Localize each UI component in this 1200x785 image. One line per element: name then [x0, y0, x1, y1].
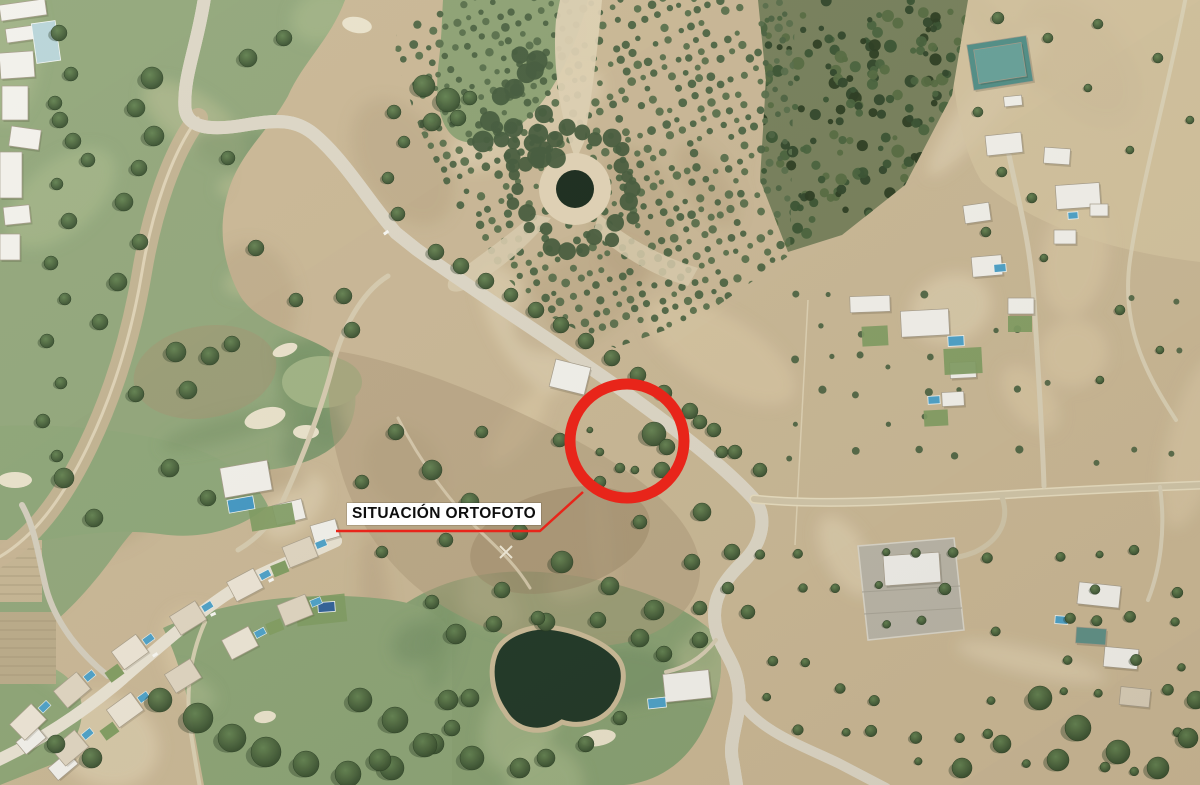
orthophoto-map: SITUACIÓN ORTOFOTO: [0, 0, 1200, 785]
situation-label: SITUACIÓN ORTOFOTO: [347, 503, 541, 525]
situation-label-text: SITUACIÓN ORTOFOTO: [352, 505, 536, 522]
aerial-photo: [0, 0, 1200, 785]
